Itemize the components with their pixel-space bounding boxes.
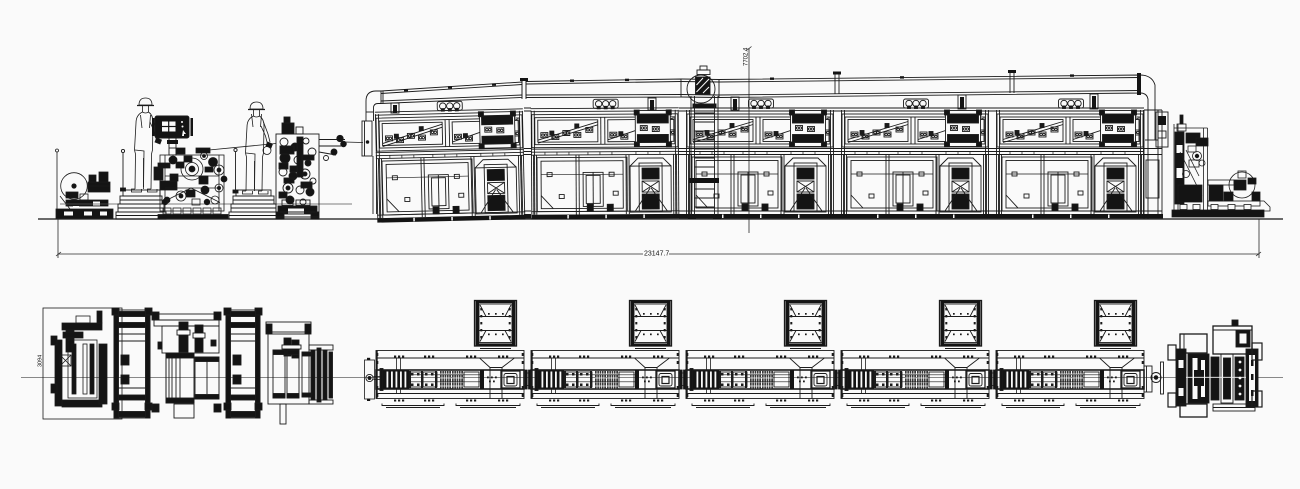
svg-text:23147.7: 23147.7 — [644, 250, 669, 257]
svg-text:3094: 3094 — [38, 355, 44, 367]
svg-text:7702.4: 7702.4 — [744, 47, 750, 66]
